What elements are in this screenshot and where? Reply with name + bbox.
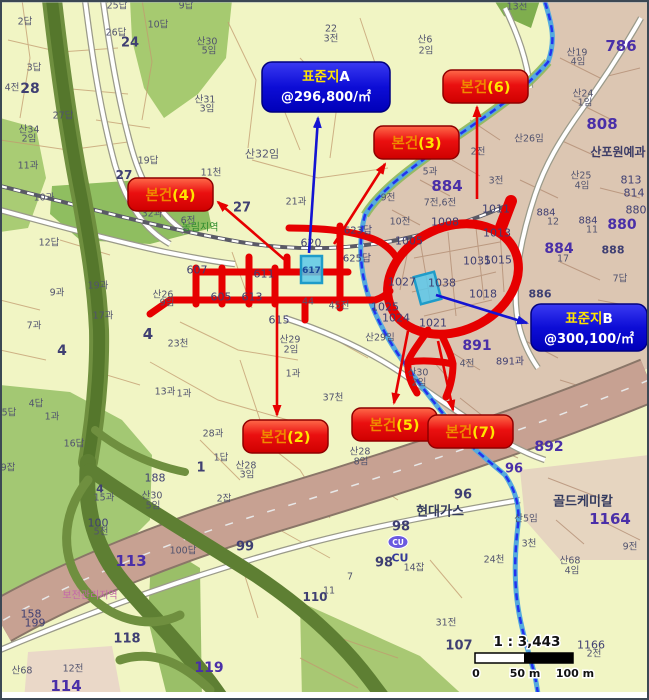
map-label: 99 bbox=[236, 540, 254, 555]
map-label: 2잡 bbox=[217, 493, 232, 505]
map-label: 107 bbox=[445, 639, 472, 654]
map-label: 892 bbox=[534, 439, 563, 455]
map-label: 2임 bbox=[412, 377, 427, 389]
map-label: 44 bbox=[302, 297, 314, 308]
map-label: 96 bbox=[454, 488, 472, 503]
map-label: 7 bbox=[347, 572, 353, 583]
subject-callout-label: 본건(7) bbox=[445, 424, 495, 441]
map-label: 8임 bbox=[354, 456, 369, 468]
map-label: 611 bbox=[254, 268, 275, 281]
map-label: 2답 bbox=[18, 16, 33, 28]
map-label: 615 bbox=[269, 314, 290, 327]
map-label: 813 bbox=[621, 174, 642, 187]
map-label: 1164 bbox=[589, 510, 631, 528]
map-label: 14잡 bbox=[404, 562, 425, 574]
map-label: 16답 bbox=[64, 438, 85, 450]
map-label: 625답 bbox=[343, 253, 371, 265]
subject-callout-label-part: (7) bbox=[472, 425, 495, 441]
map-label: 98 bbox=[392, 520, 410, 535]
map-label: 4임 bbox=[571, 56, 586, 68]
map-label: 5임 bbox=[202, 45, 217, 57]
map-label: 9잡 bbox=[1, 462, 16, 474]
map-label: 4 bbox=[143, 325, 153, 343]
map-label: 산포원예과 bbox=[590, 144, 645, 159]
standard-site-price: @296,800/㎡ bbox=[281, 89, 371, 105]
map-label: 814 bbox=[624, 187, 645, 200]
subject-callout-label-part: (3) bbox=[418, 136, 441, 152]
map-label: 11과 bbox=[18, 161, 39, 172]
map-label: 12답 bbox=[39, 237, 60, 249]
map-label: 1011 bbox=[482, 203, 510, 216]
map-label: 1 bbox=[196, 461, 205, 476]
map-label: 5과 bbox=[423, 167, 438, 178]
map-label: 2임 bbox=[284, 344, 299, 356]
subject-callout-label-part: 본건 bbox=[145, 187, 172, 204]
map-label: 3답 bbox=[27, 62, 42, 74]
subject-callout-label-part: (6) bbox=[487, 80, 510, 96]
map-label: 96 bbox=[505, 462, 523, 477]
map-label: 산5임 bbox=[514, 513, 538, 525]
map-label: 3천 bbox=[522, 539, 537, 550]
map-label: 118 bbox=[113, 632, 140, 647]
scale-bar-filled bbox=[524, 653, 573, 663]
map-label: 13전 bbox=[507, 2, 528, 13]
map-label: 23천 bbox=[168, 339, 189, 350]
standard-site-name-part: 표준지 bbox=[302, 69, 339, 85]
map-label: 7답 bbox=[613, 273, 628, 285]
map-label: 880 bbox=[607, 217, 636, 233]
map-label: 605 bbox=[211, 291, 232, 304]
map-label: 2임 bbox=[22, 133, 37, 145]
subject-callout-label-part: 본건 bbox=[460, 79, 487, 96]
map-label: 현대가스 bbox=[416, 504, 464, 520]
subject-callout-label-part: (5) bbox=[396, 418, 419, 434]
map-label: 27답 bbox=[53, 110, 74, 122]
map-label: 28과 bbox=[203, 429, 224, 440]
map-label: 1018 bbox=[469, 288, 497, 301]
map-label: 12전 bbox=[63, 664, 84, 675]
map-label: 880 bbox=[626, 204, 647, 217]
subject-callout-label: 본건(4) bbox=[145, 187, 195, 204]
map-label: 1021 bbox=[419, 317, 447, 330]
map-label: 786 bbox=[605, 37, 636, 55]
map-label: 5답 bbox=[2, 407, 17, 419]
map-label: 3전 bbox=[489, 176, 504, 187]
map-label: 15과 bbox=[94, 493, 115, 504]
map-label: 100답 bbox=[170, 545, 197, 557]
map-label: 188 bbox=[145, 472, 166, 485]
map-label: 24 bbox=[121, 36, 139, 51]
map-label: 886 bbox=[529, 288, 552, 301]
map-label: 1015 bbox=[484, 254, 512, 267]
map-label: 27 bbox=[116, 168, 133, 182]
map-label: 산26임 bbox=[514, 133, 544, 145]
map-label: 31전 bbox=[436, 618, 457, 629]
map-label: 4임 bbox=[565, 565, 580, 577]
scale-tick-0: 0 bbox=[472, 667, 480, 680]
map-label: 98 bbox=[375, 556, 393, 571]
map-label: 1027 bbox=[388, 276, 416, 289]
map-viewport[interactable]: 617 2답284전3답27답산342임11과25답26답2410답9답산305… bbox=[0, 0, 649, 700]
cu-logo-text: CU bbox=[392, 538, 404, 547]
map-label: 1024 bbox=[382, 312, 410, 325]
map-label: 1임 bbox=[578, 97, 593, 109]
scale-tick-50: 50 m bbox=[510, 667, 541, 680]
map-label: 28 bbox=[20, 81, 39, 97]
map-label: 19과 bbox=[88, 281, 109, 292]
subject-callout-label-part: 본건 bbox=[260, 429, 287, 446]
map-label: 3임 bbox=[200, 103, 215, 115]
subject-callout-label-part: 본건 bbox=[391, 135, 418, 152]
subject-callout-label: 본건(3) bbox=[391, 135, 441, 152]
map-label: 13과 bbox=[155, 387, 176, 398]
map-label: 808 bbox=[586, 115, 617, 133]
map-label: 10답 bbox=[148, 19, 169, 31]
map-label: 보전관리지역 bbox=[62, 590, 117, 602]
map-label: 21과 bbox=[286, 197, 307, 208]
standard-site-price-part: ㎡ bbox=[621, 331, 634, 347]
map-label: 3전 bbox=[324, 34, 339, 45]
subject-callout-label-part: (2) bbox=[287, 430, 310, 446]
map-label: 17 bbox=[557, 254, 569, 265]
map-label: 623답 bbox=[344, 225, 372, 237]
subject-callout-label: 본건(6) bbox=[460, 79, 510, 96]
map-label: 607 bbox=[187, 264, 208, 277]
scale-ratio: 1 : 3,443 bbox=[494, 634, 561, 650]
map-label: 산68 bbox=[12, 666, 33, 677]
map-label: 산32임 bbox=[245, 148, 279, 161]
map-label: 9전 bbox=[381, 193, 396, 204]
standard-site-name-part: 표준지 bbox=[565, 311, 602, 327]
subject-parcel-number: 617 bbox=[302, 266, 321, 276]
map-label: 산6 bbox=[418, 35, 433, 46]
map-label: 27 bbox=[233, 201, 251, 216]
map-label: 11 bbox=[586, 225, 598, 236]
subject-callout-label: 본건(2) bbox=[260, 429, 310, 446]
map-label: 4전 bbox=[5, 83, 20, 94]
map-label: 891 bbox=[462, 338, 491, 354]
map-label: 9과 bbox=[50, 288, 65, 299]
map-label: 7전,6전 bbox=[424, 198, 457, 209]
map-label: 1답 bbox=[214, 452, 229, 464]
map-label: 888 bbox=[602, 244, 625, 257]
standard-site-name-part: A bbox=[339, 69, 350, 85]
map-label: 농림지역 bbox=[182, 222, 219, 234]
map-label: 1005 bbox=[395, 235, 423, 248]
standard-site-name: 표준지A bbox=[302, 69, 350, 85]
map-label: 7과 bbox=[27, 321, 42, 332]
map-label: 2전 bbox=[587, 649, 602, 660]
map-label: 10전 bbox=[390, 217, 411, 228]
map-label: 884 bbox=[431, 177, 462, 195]
subject-callout-label: 본건(5) bbox=[369, 417, 419, 434]
scale-tick-100: 100 m bbox=[556, 667, 594, 680]
map-label: 5임 bbox=[146, 500, 161, 512]
map-label: 4임 bbox=[575, 180, 590, 192]
map-label: 4 bbox=[57, 343, 67, 359]
map-label: 37천 bbox=[323, 393, 344, 404]
map-label: 119 bbox=[194, 660, 223, 676]
standard-site-price-part: @300,100/ bbox=[544, 332, 621, 347]
map-label: 891과 bbox=[496, 356, 524, 368]
map-label: 17과 bbox=[93, 311, 114, 322]
map-label: 9임 bbox=[160, 297, 175, 309]
map-label: 45전 bbox=[329, 301, 350, 312]
subject-callout-label-part: (4) bbox=[172, 188, 195, 204]
map-label: 1008 bbox=[431, 216, 459, 229]
map-label: 613 bbox=[242, 291, 263, 304]
cu-store-logo: CU bbox=[388, 536, 408, 549]
map-label: 10과 bbox=[34, 193, 55, 204]
map-label: 1과 bbox=[286, 369, 301, 380]
map-label: 1과 bbox=[177, 389, 192, 400]
cadastral-map: 617 2답284전3답27답산342임11과25답26답2410답9답산305… bbox=[0, 0, 649, 700]
map-label: 19답 bbox=[138, 155, 159, 167]
standard-site-name-part: B bbox=[602, 311, 612, 327]
map-label: 113 bbox=[115, 552, 146, 570]
map-label: 1038 bbox=[428, 277, 456, 290]
standard-site-price-part: @296,800/ bbox=[281, 90, 358, 105]
standard-site-price-part: ㎡ bbox=[358, 89, 371, 105]
subject-callout-label-part: 본건 bbox=[369, 417, 396, 434]
map-label: 1013 bbox=[483, 227, 511, 240]
map-label: 4전 bbox=[460, 359, 475, 370]
standard-site-price: @300,100/㎡ bbox=[544, 331, 634, 347]
map-label: 12 bbox=[547, 217, 559, 228]
map-label: 24천 bbox=[484, 555, 505, 566]
map-label: 산29임 bbox=[365, 332, 395, 344]
map-label: 4답 bbox=[29, 398, 44, 410]
map-label: 2임 bbox=[419, 45, 434, 57]
standard-site-name: 표준지B bbox=[565, 311, 613, 327]
map-label: 3임 bbox=[240, 469, 255, 481]
subject-callout-label-part: 본건 bbox=[445, 424, 472, 441]
map-label: 골드케미칼 bbox=[553, 494, 613, 510]
map-label: 9전 bbox=[623, 542, 638, 553]
map-label: 199 bbox=[25, 617, 46, 630]
map-label: 1과 bbox=[45, 412, 60, 423]
map-label: 5천 bbox=[94, 527, 109, 538]
map-label: 11천 bbox=[201, 168, 222, 179]
map-label: 110 bbox=[302, 590, 327, 604]
